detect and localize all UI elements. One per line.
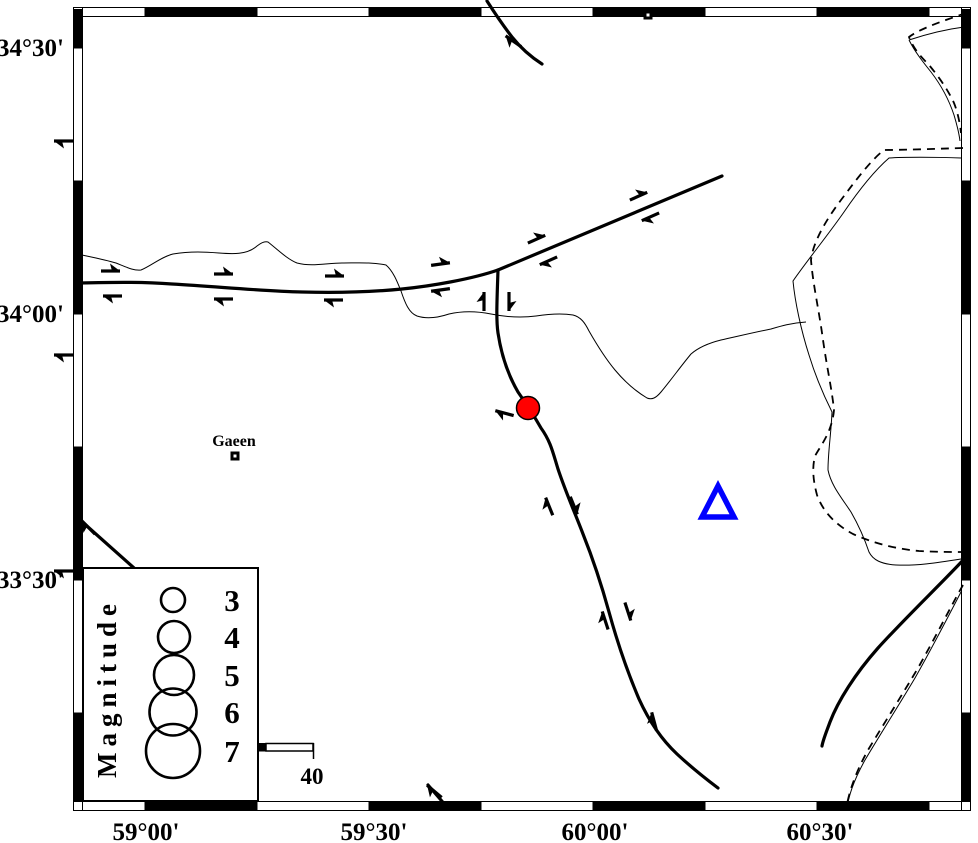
border-thin-line [793, 157, 961, 565]
magnitude-label: 7 [224, 734, 240, 769]
fault-line-top [487, 1, 542, 64]
fault-arrow-icon [539, 497, 555, 518]
longitude-label: 59°30' [341, 819, 408, 843]
fault-arrow-icon [214, 297, 233, 306]
fault-arrow-icon [623, 600, 638, 621]
fault-arrow-icon [477, 292, 486, 311]
magnitude-legend: Magnitude 3 4 5 6 7 [83, 568, 258, 801]
longitude-label: 60°30' [787, 819, 854, 843]
station-triangle-icon [702, 486, 734, 517]
river-line [82, 242, 806, 399]
fault-arrow-icon [525, 228, 546, 244]
fault-line-south [497, 270, 718, 788]
fault-arrow-icon [431, 287, 451, 299]
border-dashed-line [811, 148, 963, 552]
fault-line-right [822, 556, 967, 746]
magnitude-label: 6 [224, 695, 240, 730]
longitude-label: 59°00' [113, 819, 180, 843]
border-thin-line [847, 592, 961, 810]
fault-arrow-icon [54, 353, 73, 362]
fault-arrow-icon [325, 269, 344, 278]
fault-arrow-icon [101, 264, 120, 273]
latitude-label: 34°30' [0, 35, 64, 62]
border-dashed-line [909, 13, 966, 133]
epicenter-marker [517, 397, 540, 420]
fault-line-northeast [498, 176, 722, 270]
fault-arrow-icon [595, 611, 610, 632]
fault-arrow-icon [507, 292, 516, 311]
scale-bar: 40 [258, 743, 324, 789]
river-lines [82, 242, 806, 399]
latitude-label: 33°30' [0, 567, 64, 594]
fault-arrow-icon [430, 255, 450, 267]
fault-arrow-icon [627, 185, 648, 201]
border-lines [793, 13, 966, 810]
town-markers: Gaeen [212, 11, 652, 461]
town-label: Gaeen [212, 433, 256, 450]
fault-arrow-icon [324, 298, 343, 307]
fault-arrow-icon [103, 294, 122, 303]
fault-arrow-icon [641, 211, 662, 227]
map-page: Gaeen Magnitude 3 4 5 6 7 40 34°30' 34°0… [0, 0, 978, 843]
magnitude-label: 5 [224, 658, 240, 693]
magnitude-label: 3 [224, 583, 240, 618]
legend-title: Magnitude [92, 598, 122, 778]
border-thin-line [909, 40, 960, 141]
latitude-label: 34°00' [0, 301, 64, 328]
fault-arrow-icon [493, 409, 514, 423]
border-thin-line [909, 27, 964, 40]
longitude-label: 60°00' [562, 819, 629, 843]
fault-arrow-icon [54, 139, 73, 148]
magnitude-label: 4 [224, 620, 240, 655]
fault-arrow-icon [214, 267, 233, 276]
fault-line-east-west [80, 270, 498, 292]
scale-label: 40 [301, 764, 324, 789]
seismic-map: Gaeen Magnitude 3 4 5 6 7 40 34°30' 34°0… [0, 0, 978, 843]
fault-arrow-icon [539, 255, 560, 271]
